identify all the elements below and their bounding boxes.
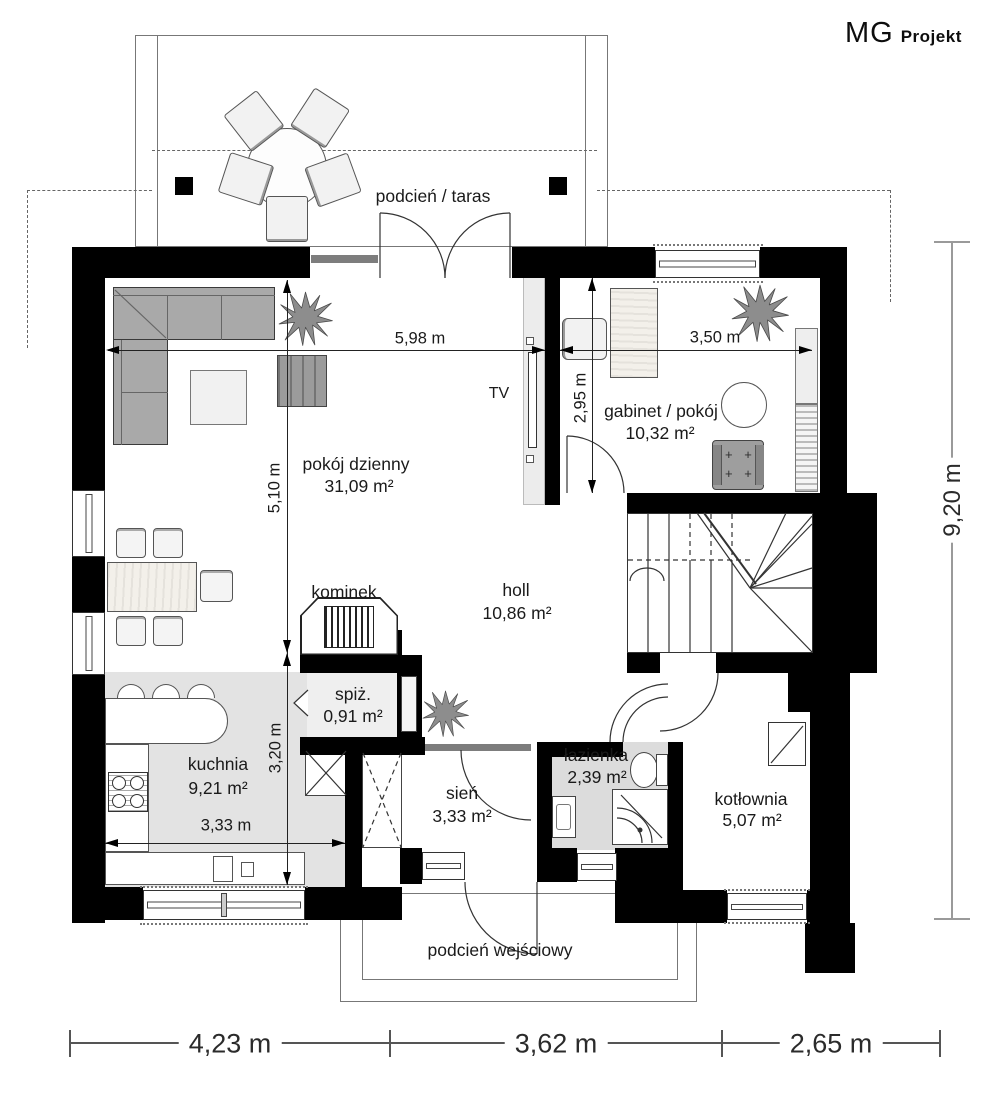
dining-chair <box>116 528 146 558</box>
dim-label: 3,50 m <box>690 329 740 348</box>
armchair: + ++ + <box>712 440 764 490</box>
dining-chair <box>200 570 233 602</box>
tv-mount <box>526 337 534 345</box>
dim-label-bottom: 4,23 m <box>179 1028 282 1059</box>
armchair <box>277 355 327 407</box>
dimension-arrow <box>588 480 596 493</box>
dining-table <box>107 562 197 612</box>
dining-chair <box>153 616 183 646</box>
wall <box>627 653 660 673</box>
wall <box>807 890 850 923</box>
room-label-kotlownia: kotłownia <box>715 789 788 809</box>
dimension-line <box>287 653 288 885</box>
sink-basin <box>556 804 571 830</box>
roof-overhang-dashed <box>597 190 890 191</box>
terrace-rail-left <box>157 35 158 247</box>
dimension-arrow <box>560 346 573 354</box>
sofa-seam <box>167 295 168 340</box>
tv-icon <box>528 352 537 448</box>
wall <box>300 737 425 755</box>
dimension-tick <box>721 1030 723 1057</box>
window-sill-line <box>653 244 763 246</box>
window <box>72 612 105 675</box>
dim-label: 3,20 m <box>267 723 286 773</box>
dimension-arrow <box>532 346 545 354</box>
sofa-seam <box>121 392 168 393</box>
tv-mount <box>526 455 534 463</box>
wall <box>72 675 105 923</box>
room-label-kuchnia: kuchnia <box>188 754 248 774</box>
dimension-line <box>560 350 812 351</box>
wall <box>545 277 560 505</box>
dimension-arrow <box>283 280 291 293</box>
wall <box>668 742 683 850</box>
brand-logo-projekt: Projekt <box>901 27 962 47</box>
fireplace <box>300 597 398 655</box>
room-label-kominek: kominek <box>311 582 376 602</box>
wall <box>627 493 820 513</box>
plant-icon <box>732 285 788 341</box>
closet <box>362 752 402 848</box>
wall <box>300 655 422 673</box>
terrace-rail-right <box>585 35 586 247</box>
room-label-gabinet: gabinet / pokój <box>604 401 718 421</box>
radiator-ladder <box>795 404 818 492</box>
dim-label: 5,98 m <box>395 330 445 349</box>
room-label-taras: podcień / taras <box>376 186 491 206</box>
kitchen-counter <box>105 698 228 744</box>
terrace-post <box>175 177 193 195</box>
room-label-wejscie: podcień wejściowy <box>428 940 573 960</box>
room-label-holl: holl <box>502 580 529 600</box>
window-sill-line <box>724 889 810 891</box>
window-sill-line <box>140 886 308 888</box>
radiator <box>795 328 818 404</box>
toilet-tank <box>656 754 668 786</box>
wall <box>72 557 105 612</box>
wall <box>615 890 727 923</box>
window <box>72 490 105 557</box>
roof-overhang-dashed <box>152 150 597 151</box>
boiler-icon <box>768 722 806 766</box>
dimension-line <box>287 280 288 653</box>
room-label-pokoj-dzienny: pokój dzienny <box>302 454 409 474</box>
round-table <box>721 382 767 428</box>
glazing-sill <box>311 255 378 263</box>
dim-label: 3,33 m <box>201 817 251 836</box>
tv-label: TV <box>489 385 509 403</box>
dimension-tick <box>934 241 970 243</box>
window-sill-line <box>140 923 308 925</box>
dim-label-total: 9,20 m <box>937 457 969 542</box>
floor-plan: + ++ + <box>0 0 995 1107</box>
dimension-arrow <box>588 278 596 291</box>
room-label-sien: sień <box>446 783 478 803</box>
wall <box>810 673 850 890</box>
wall <box>72 247 310 278</box>
dimension-tick <box>934 918 970 920</box>
sofa-seam <box>113 295 275 296</box>
kitchen-cabinet-run <box>105 852 305 885</box>
dimension-arrow <box>799 346 812 354</box>
window <box>655 250 760 278</box>
window <box>727 893 807 920</box>
wall <box>512 247 655 278</box>
roof-overhang-dashed <box>890 190 891 302</box>
wall <box>537 848 577 882</box>
closet <box>305 750 347 796</box>
dining-chair <box>153 528 183 558</box>
window-sill-line <box>653 281 763 283</box>
terrace-post <box>549 177 567 195</box>
dim-label-bottom: 2,65 m <box>780 1028 883 1059</box>
room-area-spiz: 0,91 m² <box>323 706 382 726</box>
dim-label: 5,10 m <box>266 463 285 513</box>
dim-label-bottom: 3,62 m <box>505 1028 608 1059</box>
wall <box>820 247 847 493</box>
dimension-arrow <box>283 640 291 653</box>
dimension-line <box>592 278 593 493</box>
wall <box>72 247 105 490</box>
dimension-arrow <box>332 839 345 847</box>
room-label-lazienka: łazienka <box>564 745 628 765</box>
roof-overhang-dashed <box>27 190 152 191</box>
dimension-tick <box>939 1030 941 1057</box>
wall <box>72 887 143 920</box>
staircase <box>627 513 813 653</box>
brand-logo: MG Projekt <box>845 17 962 50</box>
window-sill-line <box>724 922 810 924</box>
toilet-icon <box>630 752 658 788</box>
dim-label: 2,95 m <box>572 373 591 423</box>
brand-logo-mg: MG <box>845 17 894 50</box>
dimension-line <box>108 350 545 351</box>
dining-chair <box>116 616 146 646</box>
window <box>422 852 465 880</box>
room-area-sien: 3,33 m² <box>432 806 491 826</box>
dimension-line-total <box>951 242 953 920</box>
roof-overhang-dashed <box>27 190 28 348</box>
dimension-arrow <box>105 839 118 847</box>
wall <box>805 923 855 973</box>
dimension-arrow <box>283 653 291 666</box>
coffee-table <box>190 370 247 425</box>
window <box>577 853 617 881</box>
dimension-line <box>105 843 345 844</box>
room-area-gabinet: 10,32 m² <box>625 423 694 443</box>
wall <box>345 748 362 888</box>
dimension-arrow <box>283 872 291 885</box>
dimension-tick <box>69 1030 71 1057</box>
shower-icon <box>612 789 668 845</box>
room-area-kuchnia: 9,21 m² <box>188 778 247 798</box>
plant-icon <box>423 691 469 737</box>
stove-icon <box>108 772 148 812</box>
pantry-door-leaf <box>401 676 417 732</box>
window <box>143 890 305 920</box>
desk <box>610 288 658 378</box>
cabinet-knob <box>241 862 254 877</box>
wall <box>305 887 402 920</box>
door-sill <box>425 744 531 751</box>
room-area-holl: 10,86 m² <box>482 603 551 623</box>
room-area-kotlownia: 5,07 m² <box>722 810 781 830</box>
cabinet-door <box>213 856 233 882</box>
terrace-outline <box>135 35 608 247</box>
wall <box>400 848 422 884</box>
wall <box>813 493 877 673</box>
dimension-arrow <box>106 346 119 354</box>
room-area-pokoj-dzienny: 31,09 m² <box>324 476 393 496</box>
room-label-spiz: spiż. <box>335 684 371 704</box>
terrace-chair <box>266 196 308 242</box>
dimension-tick <box>389 1030 391 1057</box>
room-area-lazienka: 2,39 m² <box>567 767 626 787</box>
sofa-seam <box>221 295 222 340</box>
